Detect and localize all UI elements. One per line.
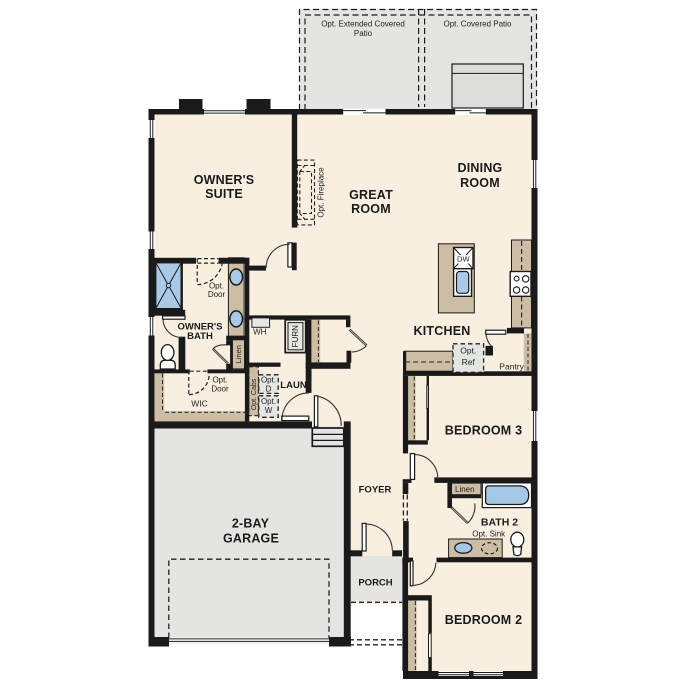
svg-text:BEDROOM 2: BEDROOM 2: [445, 613, 523, 627]
svg-text:WIC: WIC: [191, 399, 208, 409]
svg-text:LAUN: LAUN: [280, 380, 307, 391]
svg-text:Linen: Linen: [455, 485, 475, 494]
svg-text:Opt.: Opt.: [460, 346, 476, 356]
svg-text:WH: WH: [253, 328, 267, 337]
svg-text:Patio: Patio: [354, 29, 373, 38]
svg-text:2-BAY: 2-BAY: [232, 516, 270, 530]
svg-text:Opt. Sink: Opt. Sink: [472, 530, 506, 539]
svg-text:Opt.: Opt.: [212, 376, 227, 385]
svg-text:Linen: Linen: [234, 345, 243, 363]
svg-text:OWNER'S: OWNER'S: [194, 173, 255, 187]
svg-text:Pantry: Pantry: [499, 362, 524, 372]
svg-text:ROOM: ROOM: [460, 176, 500, 190]
svg-text:DW: DW: [457, 254, 470, 263]
svg-text:W: W: [265, 406, 273, 415]
svg-text:FOYER: FOYER: [359, 485, 392, 496]
svg-text:D: D: [266, 384, 272, 393]
svg-text:Door: Door: [211, 384, 229, 393]
svg-text:BATH: BATH: [187, 331, 213, 342]
svg-text:BEDROOM 3: BEDROOM 3: [445, 424, 523, 438]
svg-text:FURN: FURN: [291, 325, 300, 347]
svg-text:Opt. Fireplace: Opt. Fireplace: [317, 167, 326, 218]
svg-text:Opt.: Opt.: [261, 376, 276, 385]
svg-text:BATH 2: BATH 2: [481, 517, 518, 529]
svg-text:PORCH: PORCH: [358, 578, 392, 589]
svg-text:GARAGE: GARAGE: [223, 531, 279, 545]
svg-text:Opt. Cabs: Opt. Cabs: [251, 378, 258, 410]
svg-text:Door: Door: [208, 290, 226, 299]
svg-text:DINING: DINING: [458, 161, 503, 175]
svg-text:Opt. Covered Patio: Opt. Covered Patio: [443, 19, 512, 28]
svg-text:Ref: Ref: [462, 357, 476, 367]
svg-text:SUITE: SUITE: [205, 187, 243, 201]
svg-text:ROOM: ROOM: [351, 202, 391, 216]
svg-text:Opt.: Opt.: [261, 397, 276, 406]
svg-text:Opt. Extended Covered: Opt. Extended Covered: [321, 19, 405, 28]
svg-text:KITCHEN: KITCHEN: [414, 324, 471, 338]
svg-text:GREAT: GREAT: [349, 188, 393, 202]
